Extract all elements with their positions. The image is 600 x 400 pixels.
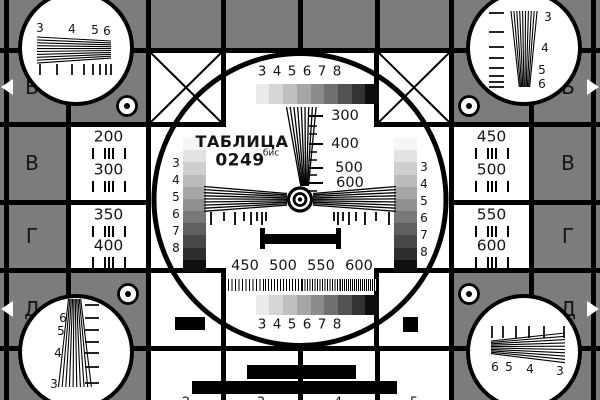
resolution-scale-label-0: 300	[331, 109, 359, 124]
panel-right-1-g0-tick-4	[507, 226, 509, 237]
burst-segment-1	[265, 279, 302, 291]
panel-left-0-g1-tick-2	[108, 181, 110, 192]
burst-segment-3	[340, 279, 377, 291]
black-bar	[264, 234, 337, 244]
gray-column-right-step-6	[394, 211, 417, 224]
gray-column-left-step-4	[183, 187, 206, 200]
panel-left-0-g0-tick-3	[112, 148, 114, 159]
panel-left-0-g1-tick-0	[92, 181, 94, 192]
bottom-edge-digit-3: 5	[410, 397, 418, 400]
gray-column-right-step-8	[394, 235, 417, 248]
panel-right-0-g0-tick-0	[475, 148, 477, 159]
gray-column-right-step-3	[394, 175, 417, 188]
panel-right-1-num-1: 600	[477, 238, 507, 254]
panel-right-0-g0-tick-1	[487, 148, 489, 159]
bottom-bar-long	[192, 381, 397, 394]
left-column-label-1: 4	[172, 174, 180, 186]
panel-right-0-g1-tick-0	[475, 181, 477, 192]
panel-right-1-g1-tick-2	[491, 257, 493, 268]
corner-top-left-label-2: 5	[91, 24, 99, 36]
corner-top-right-label-3: 6	[538, 78, 546, 90]
panel-left-0-g0-tick-4	[124, 148, 126, 159]
grayscale-top-step-1	[256, 84, 270, 104]
panel-left-1-g1-tick-4	[124, 257, 126, 268]
corner-top-right-label-2: 5	[538, 64, 546, 76]
right-column-label-1: 4	[420, 178, 428, 190]
grayscale-bottom-step-6	[324, 295, 338, 315]
gray-column-right-step-5	[394, 199, 417, 212]
panel-left-1-g1-tick-3	[112, 257, 114, 268]
bottom-grayscale-label-3: 6	[303, 318, 312, 332]
corner-circle-bottom-left	[18, 294, 134, 400]
corner-bottom-left-label-3: 3	[50, 378, 58, 390]
corner-bottom-right-label-2: 4	[526, 363, 534, 375]
panel-left-0-g1-tick-4	[124, 181, 126, 192]
black-bar-cap-right	[336, 228, 341, 249]
left-column-label-2: 5	[172, 191, 180, 203]
panel-left-1-g1-tick-2	[108, 257, 110, 268]
burst-label-2: 550	[307, 259, 335, 274]
gray-column-left-step-8	[183, 235, 206, 248]
top-grayscale-label-1: 4	[273, 65, 282, 79]
right-column-label-3: 6	[420, 212, 428, 224]
corner-bottom-left-label-0: 6	[59, 312, 67, 324]
reflection-cell-right	[374, 268, 454, 351]
gray-column-right-step-1	[394, 150, 417, 163]
top-grayscale-label-4: 7	[318, 65, 327, 79]
panel-left-0-num-0: 200	[94, 129, 124, 145]
gray-column-left-step-3	[183, 175, 206, 188]
registration-ring	[119, 285, 138, 304]
bottom-edge-digit-2: 4	[334, 397, 342, 400]
panel-right-0-g1-tick-1	[487, 181, 489, 192]
right-column-label-2: 5	[420, 195, 428, 207]
grayscale-top-step-6	[324, 84, 338, 104]
burst-segment-0	[228, 279, 265, 291]
panel-left-1-g0-tick-4	[124, 226, 126, 237]
corner-top-right-label-0: 3	[544, 11, 552, 23]
corner-circle-top-left	[18, 0, 134, 106]
panel-left-0-g0-tick-1	[104, 148, 106, 159]
panel-right-0-g1-tick-2	[491, 181, 493, 192]
gray-column-right-step-10	[394, 260, 417, 273]
edge-letter-right-Г: Г	[562, 226, 574, 246]
grayscale-bottom-step-4	[297, 295, 311, 315]
gray-column-left-step-2	[183, 162, 206, 175]
tv-test-card: 23452345БВГДБВГД200300350400450500550600…	[0, 0, 600, 400]
panel-left-0-g0-tick-0	[92, 148, 94, 159]
bottom-bar-short	[247, 365, 356, 379]
bottom-grayscale-label-2: 5	[288, 318, 297, 332]
panel-right-0-g1-tick-3	[495, 181, 497, 192]
burst-label-0: 450	[231, 259, 259, 274]
panel-right-0-g0-tick-4	[507, 148, 509, 159]
bottom-grayscale-label-5: 8	[333, 318, 342, 332]
corner-top-left-label-0: 3	[36, 22, 44, 34]
panel-right-1-num-0: 550	[477, 207, 507, 223]
gray-column-left-step-10	[183, 260, 206, 273]
burst-label-1: 500	[269, 259, 297, 274]
gray-column-right-step-9	[394, 248, 417, 261]
corner-bottom-right-label-3: 3	[556, 365, 564, 377]
corner-bottom-left-label-2: 4	[54, 347, 62, 359]
panel-left-0-g1-tick-1	[104, 181, 106, 192]
panel-right-0-num-1: 500	[477, 162, 507, 178]
grayscale-top-step-5	[311, 84, 325, 104]
corner-bottom-right-label-1: 5	[505, 361, 513, 373]
panel-right-0-g0-tick-2	[491, 148, 493, 159]
panel-right-0-g0-tick-3	[495, 148, 497, 159]
grayscale-top-step-3	[283, 84, 297, 104]
top-grayscale-label-2: 5	[288, 65, 297, 79]
card-code-sup: бис	[263, 150, 279, 159]
left-column-label-4: 7	[172, 225, 180, 237]
gray-column-left-step-6	[183, 211, 206, 224]
panel-left-1-num-1: 400	[94, 238, 124, 254]
grayscale-bottom-step-1	[256, 295, 270, 315]
bottom-edge-digit-0: 2	[182, 397, 190, 400]
edge-letter-right-В: В	[561, 153, 575, 173]
registration-ring	[460, 97, 479, 116]
panel-left-0-g1-tick-3	[112, 181, 114, 192]
edge-letter-left-Г: Г	[26, 226, 38, 246]
grayscale-bottom-step-0	[242, 295, 256, 315]
grayscale-top-step-4	[297, 84, 311, 104]
top-grayscale-label-3: 6	[303, 65, 312, 79]
bottom-grayscale-label-4: 7	[318, 318, 327, 332]
panel-right-1-g1-tick-4	[507, 257, 509, 268]
resolution-scale-label-1: 400	[331, 137, 359, 152]
diagonal-cell-left	[146, 48, 226, 127]
right-column-label-4: 7	[420, 229, 428, 241]
gray-column-left-step-1	[183, 150, 206, 163]
panel-left-1-g1-tick-0	[92, 257, 94, 268]
bottom-grayscale-label-1: 4	[273, 318, 282, 332]
top-edge-digit-0: 2	[182, 0, 190, 3]
grayscale-top-step-7	[338, 84, 352, 104]
resolution-scale-label-3: 600	[336, 176, 364, 191]
bottom-edge-digit-1: 3	[257, 397, 265, 400]
gray-column-left-step-7	[183, 223, 206, 236]
right-column-label-5: 8	[420, 246, 428, 258]
grayscale-bottom-step-2	[269, 295, 283, 315]
panel-right-1-g1-tick-1	[487, 257, 489, 268]
grayscale-top-step-0	[242, 84, 256, 104]
grayscale-top-step-2	[269, 84, 283, 104]
gray-column-left-step-5	[183, 199, 206, 212]
grayscale-bottom-step-8	[352, 295, 366, 315]
left-column-label-0: 3	[172, 157, 180, 169]
registration-dot	[124, 103, 130, 109]
panel-left-1-num-0: 350	[94, 207, 124, 223]
panel-left-0-g0-tick-2	[108, 148, 110, 159]
grayscale-bottom-step-7	[338, 295, 352, 315]
gray-column-right-step-2	[394, 162, 417, 175]
panel-right-0-num-0: 450	[477, 129, 507, 145]
corner-top-left-label-3: 6	[103, 25, 111, 37]
registration-dot	[466, 103, 472, 109]
burst-label-3: 600	[345, 259, 373, 274]
reflection-bar-left	[175, 317, 205, 330]
corner-circle-bottom-right	[466, 294, 582, 400]
corner-top-left-label-1: 4	[68, 23, 76, 35]
top-grayscale-label-5: 8	[333, 65, 342, 79]
panel-right-1-g1-tick-3	[495, 257, 497, 268]
left-column-label-5: 8	[172, 242, 180, 254]
edge-letter-left-В: В	[25, 153, 39, 173]
top-edge-digit-3: 5	[410, 0, 418, 3]
top-grayscale-label-0: 3	[258, 65, 267, 79]
registration-ring	[118, 97, 137, 116]
panel-left-0-num-1: 300	[94, 162, 124, 178]
gray-column-right-step-4	[394, 187, 417, 200]
grayscale-bottom-step-5	[311, 295, 325, 315]
grayscale-bottom-step-9	[365, 295, 379, 315]
bottom-grayscale-label-0: 3	[258, 318, 267, 332]
corner-top-right-label-1: 4	[541, 42, 549, 54]
panel-right-1-g1-tick-0	[475, 257, 477, 268]
reflection-square-right	[403, 317, 418, 332]
registration-dot	[125, 291, 131, 297]
grayscale-bottom-step-3	[283, 295, 297, 315]
registration-dot	[466, 291, 472, 297]
panel-right-0-g1-tick-4	[507, 181, 509, 192]
grayscale-top-step-9	[365, 84, 379, 104]
gray-column-right-step-0	[394, 138, 417, 151]
resolution-scale-label-2: 500	[335, 161, 363, 176]
gray-column-right-step-7	[394, 223, 417, 236]
grayscale-top-step-8	[352, 84, 366, 104]
left-column-label-3: 6	[172, 208, 180, 220]
gray-column-left-step-9	[183, 248, 206, 261]
corner-bottom-right-label-0: 6	[491, 361, 499, 373]
card-code: 0249	[215, 153, 264, 170]
corner-bottom-left-label-1: 5	[57, 325, 65, 337]
diagonal-cell-right	[374, 48, 454, 127]
panel-left-1-g1-tick-1	[104, 257, 106, 268]
black-bar-cap-left	[260, 228, 265, 249]
reflection-cell-left	[146, 268, 226, 351]
burst-segment-2	[302, 279, 340, 291]
registration-ring	[460, 285, 479, 304]
right-column-label-0: 3	[420, 161, 428, 173]
top-edge-digit-1: 3	[257, 0, 265, 3]
top-edge-digit-2: 4	[334, 0, 342, 3]
